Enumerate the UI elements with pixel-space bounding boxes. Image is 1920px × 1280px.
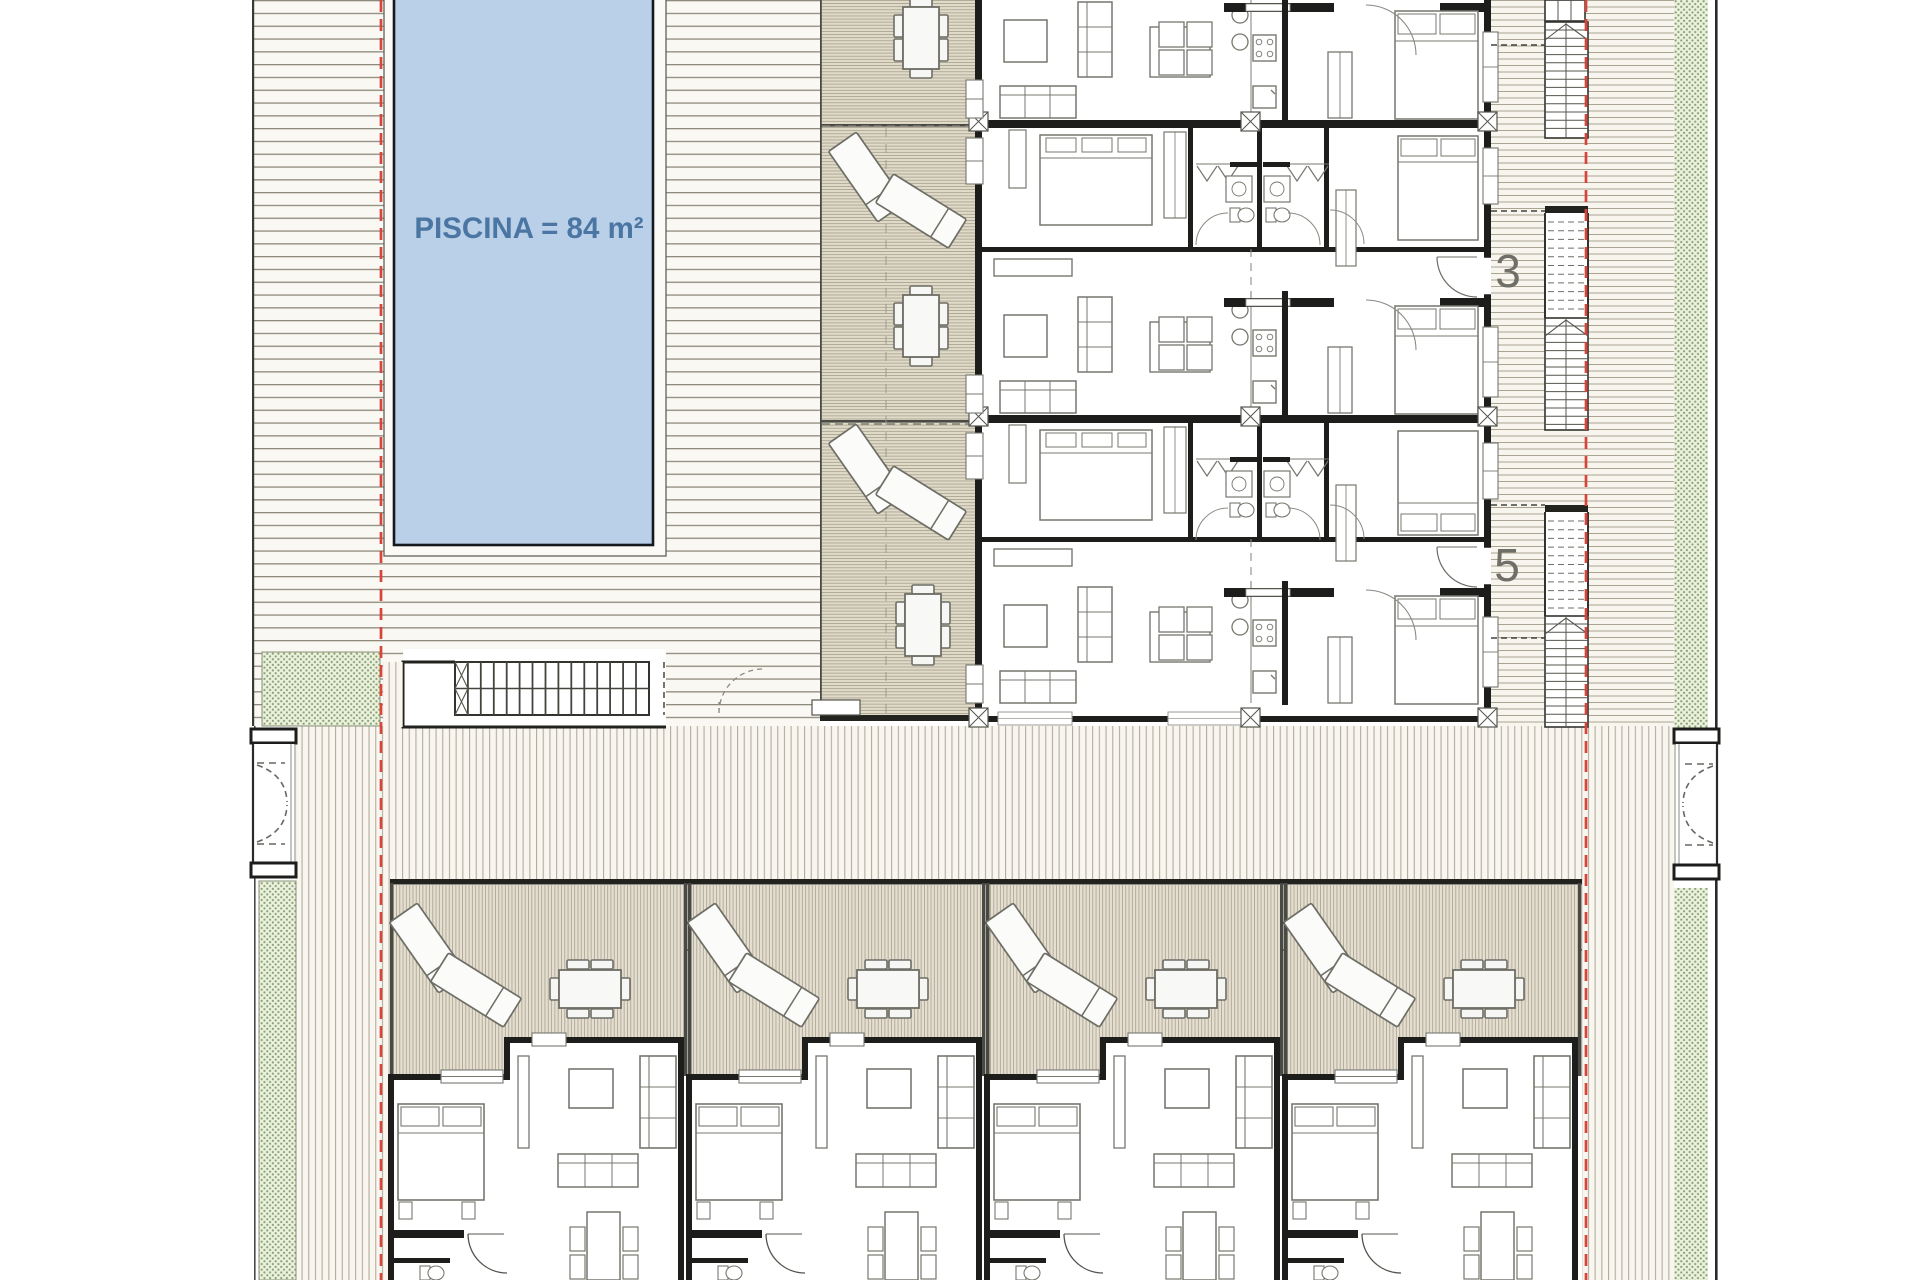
svg-text:PISCINA = 84 m²: PISCINA = 84 m² bbox=[414, 212, 643, 245]
svg-text:3: 3 bbox=[1495, 245, 1521, 297]
svg-text:5: 5 bbox=[1494, 539, 1520, 591]
